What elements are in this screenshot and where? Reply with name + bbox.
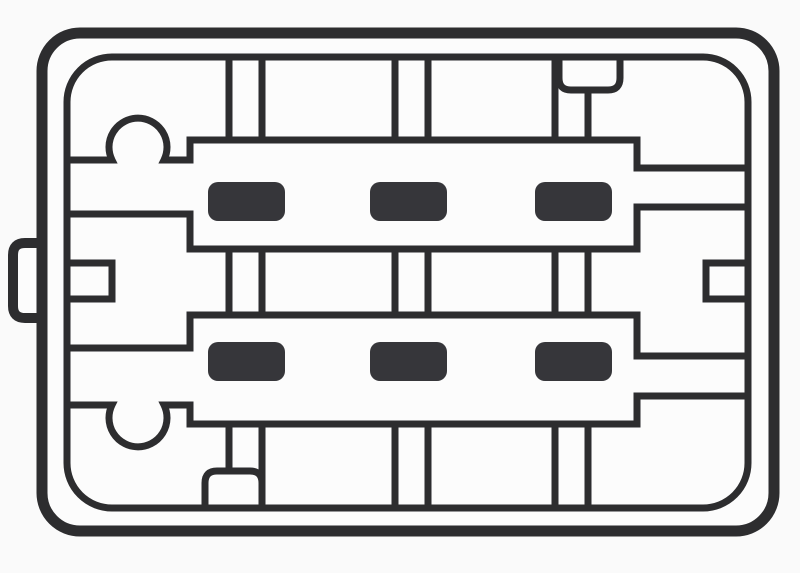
outer-housing-outline xyxy=(42,33,774,531)
terminal-pin xyxy=(535,182,612,221)
terminal-pin xyxy=(535,342,612,381)
terminal-pin xyxy=(208,182,285,221)
terminal-pin xyxy=(370,342,447,381)
connector-diagram xyxy=(0,0,800,573)
terminal-pin xyxy=(208,342,285,381)
terminal-pin xyxy=(370,182,447,221)
connector-diagram-canvas xyxy=(0,0,800,573)
